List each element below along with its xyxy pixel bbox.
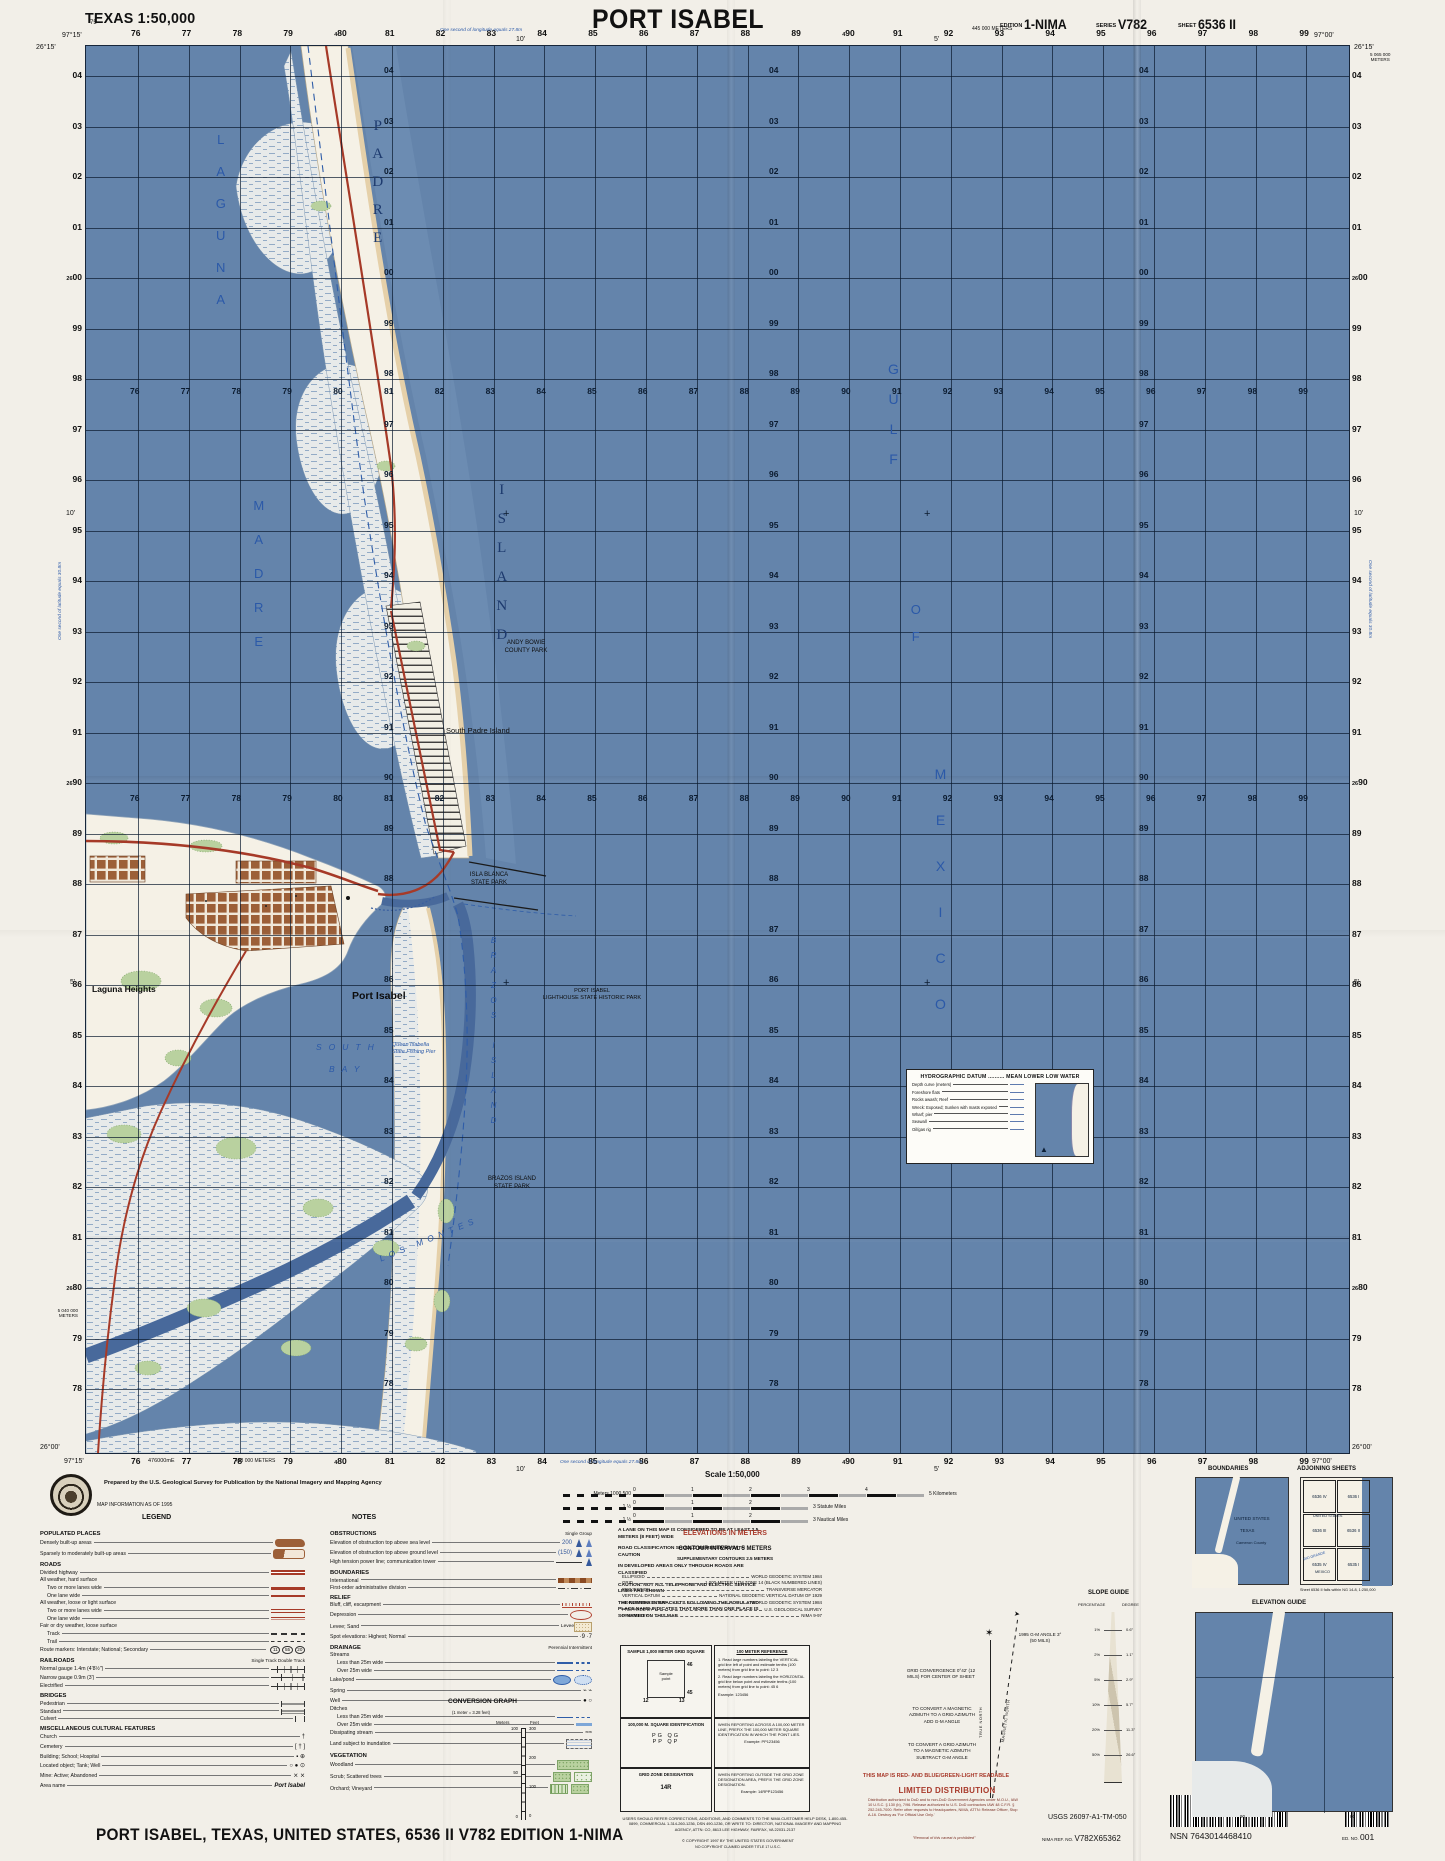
grid-label-interior: 99 xyxy=(769,318,778,328)
leader-line xyxy=(361,1625,559,1626)
grid-label-top: 95 xyxy=(1096,28,1105,38)
copyright-line-2: NO COPYRIGHT CLAIMED UNDER TITLE 17 U.S.… xyxy=(648,1845,828,1849)
grid-label-right: 82 xyxy=(1352,1181,1361,1191)
legend-item-label: Less than 25m wide xyxy=(337,1714,383,1720)
sheet-number-block: SHEET6536 II xyxy=(1178,16,1240,34)
magnetic-north-arrow-icon: ➤ xyxy=(1013,1610,1020,1619)
grid-label-interior: 83 xyxy=(1139,1126,1148,1136)
legend-symbol xyxy=(271,1595,305,1597)
legend-item-label: Dissipating stream xyxy=(330,1730,373,1736)
legend-item: Normal gauge 1.4m (4'8½") xyxy=(40,1666,305,1673)
grid-label-interior: 88 xyxy=(1139,873,1148,883)
leader-line xyxy=(440,1552,556,1553)
conversion-meters-label: Meters xyxy=(496,1720,509,1725)
grid-label-interior: 95 xyxy=(1095,793,1104,803)
grid-label-right: 88 xyxy=(1352,878,1361,888)
legend-item: Two or more lanes wide xyxy=(40,1608,305,1614)
map-label-south: SOUTH xyxy=(316,1042,381,1053)
legend-symbol: 200 xyxy=(562,1539,572,1547)
slope-guide-degree: 11.3° xyxy=(1126,1727,1135,1732)
grid-label-right: 89 xyxy=(1352,828,1361,838)
grid-label-interior: 00 xyxy=(1139,267,1148,277)
legend-item-label: Building; School; Hospital xyxy=(40,1754,99,1760)
grid-label-right: 2690 xyxy=(1352,777,1368,787)
grid-line-horizontal xyxy=(86,884,1349,885)
grid-label-interior: 85 xyxy=(587,386,596,396)
grid-label-interior: 95 xyxy=(1139,520,1148,530)
slope-guide-diagram xyxy=(1104,1612,1122,1783)
legend-item: Dissipating stream≈≈ xyxy=(330,1729,592,1737)
legend-group-label: All weather, loose or light surface xyxy=(40,1600,305,1606)
grid-label-interior: 92 xyxy=(943,386,952,396)
grid-line-horizontal xyxy=(86,1389,1349,1390)
legend-symbol xyxy=(553,1675,571,1685)
hydro-row-label: Seawall xyxy=(912,1119,927,1124)
legend-item-label: Trail xyxy=(47,1639,57,1645)
map-label-andy-bowie-county-park: ANDY BOWIE COUNTY PARK xyxy=(496,640,556,655)
leader-line xyxy=(432,1542,560,1543)
grid-label-left: 81 xyxy=(52,1232,82,1242)
conversion-feet-tick: 100 xyxy=(529,1784,536,1789)
grid-label-top: 88 xyxy=(741,28,750,38)
legend-symbol xyxy=(557,1717,573,1718)
grid-label-interior: 98 xyxy=(769,368,778,378)
contour-interval: CONTOUR INTERVAL 5 METERS xyxy=(640,1546,810,1552)
leader-line xyxy=(393,1743,564,1744)
legend-item-label: Area name xyxy=(40,1783,65,1789)
scale-bar-dashed xyxy=(563,1520,635,1523)
grid-label-bottom: 91 xyxy=(893,1456,902,1466)
grid-line-horizontal xyxy=(86,783,1349,784)
grid-line-horizontal xyxy=(86,581,1349,582)
footer-sheet-title: PORT ISABEL, TEXAS, UNITED STATES, 6536 … xyxy=(96,1826,623,1845)
grid-line-horizontal xyxy=(86,834,1349,835)
leader-line xyxy=(383,1604,560,1605)
grid-label-interior: 98 xyxy=(1248,793,1257,803)
slope-guide-row-line xyxy=(1104,1755,1122,1756)
scale-bar-tick: 1 xyxy=(691,1500,694,1506)
slope-guide-degree: 0.6° xyxy=(1126,1627,1133,1632)
leader-line xyxy=(374,1670,555,1671)
grid-line-vertical xyxy=(900,46,901,1453)
grid-label-interior: 85 xyxy=(587,793,596,803)
legend-item-label: Church xyxy=(40,1734,57,1740)
hundred-meter-step: 2. Read large numbers labeling the HORIZ… xyxy=(718,1674,806,1689)
legend-item: Scrub; Scattered trees xyxy=(330,1772,592,1782)
grid-label-interior: 82 xyxy=(435,793,444,803)
hydro-row-symbol xyxy=(1010,1091,1024,1094)
grid-label-interior: 01 xyxy=(769,217,778,227)
scale-bar-tick: 4 xyxy=(865,1487,868,1493)
latitude-note: One second of latitude equals 30.8m xyxy=(58,562,63,640)
legend-item-label: Mine: Active; Abandoned xyxy=(40,1773,97,1779)
grid-label-interior: 94 xyxy=(1044,793,1053,803)
grid-line-horizontal xyxy=(86,329,1349,330)
grid-label-interior: 88 xyxy=(769,873,778,883)
legend-symbol: [ † ] xyxy=(295,1743,305,1751)
grid-label-interior: 00 xyxy=(769,267,778,277)
hundred-meter-step: 1. Read large numbers labeling the VERTI… xyxy=(718,1657,806,1672)
grid-label-interior: 89 xyxy=(790,793,799,803)
slope-guide-col2: DEGREE xyxy=(1122,1602,1139,1607)
grid-label-right: 93 xyxy=(1352,626,1361,636)
grid-label-bottom: 83 xyxy=(487,1456,496,1466)
grid-label-top: 99 xyxy=(1299,28,1308,38)
adjoining-country-top: UNITED STATES xyxy=(1313,1514,1342,1518)
leader-line xyxy=(102,1765,287,1766)
grid-label-left: 93 xyxy=(52,626,82,636)
boundaries-land-shape xyxy=(1192,1554,1238,1588)
minute-tick-10: 10' xyxy=(516,1466,525,1473)
datum-key: HORIZONTAL DATUM xyxy=(622,1600,666,1605)
legend-item-label: Land subject to inundation xyxy=(330,1741,391,1747)
grid-line-horizontal xyxy=(86,1238,1349,1239)
legend-symbol xyxy=(557,1760,589,1770)
grid-label-right: 01 xyxy=(1352,222,1361,232)
legend-section-header: DRAINAGEPerennial Intermittent xyxy=(330,1645,592,1651)
grid-label-interior: 81 xyxy=(384,1227,393,1237)
minute-tick-5: 5' xyxy=(934,1466,939,1473)
legend-symbol xyxy=(273,1549,305,1559)
grid-line-vertical xyxy=(1306,46,1307,1453)
leader-line xyxy=(99,1775,291,1776)
legend-item: High tension power line; communication t… xyxy=(330,1558,592,1566)
reporting-outside-box: WHEN REPORTING OUTSIDE THE GRID ZONE DES… xyxy=(714,1768,810,1812)
grid-line-vertical xyxy=(1205,46,1206,1453)
grid-label-interior: 98 xyxy=(1139,368,1148,378)
grid-line-horizontal xyxy=(86,127,1349,128)
grid-label-interior: 98 xyxy=(1248,386,1257,396)
grid-label-bottom: 92 xyxy=(944,1456,953,1466)
leader-line xyxy=(375,1732,584,1733)
minute-tick-5: 5' xyxy=(1354,979,1359,986)
grid-label-interior: 91 xyxy=(769,722,778,732)
legend-item-label: Two or more lanes wide xyxy=(47,1608,102,1614)
grid-label-interior: 90 xyxy=(841,793,850,803)
legend-item-label: First-order administrative division xyxy=(330,1585,406,1591)
map-label-south-padre-island: South Padre Island xyxy=(446,726,510,735)
leader-line xyxy=(662,1596,717,1597)
grid-label-interior: 01 xyxy=(1139,217,1148,227)
legend-item-label: International xyxy=(330,1578,359,1584)
grid-label-interior: 93 xyxy=(1139,621,1148,631)
legend-item: Mine: Active; Abandoned⨯ ⨯ xyxy=(40,1772,305,1780)
grid-line-horizontal xyxy=(86,480,1349,481)
grid-label-left: 92 xyxy=(52,676,82,686)
leader-line xyxy=(347,1690,581,1691)
hydro-row: Rocks awash; Reef xyxy=(912,1097,1024,1102)
reporting-outside-text: WHEN REPORTING OUTSIDE THE GRID ZONE DES… xyxy=(718,1772,806,1787)
map-label-mexico: MEXICO xyxy=(931,766,949,1042)
grid-zone-box: GRID ZONE DESIGNATION14R xyxy=(620,1768,712,1812)
grid-label-left: 03 xyxy=(52,121,82,131)
datum-row: GRID1,000-METER UTM ZONE 14 (BLACK NUMBE… xyxy=(622,1580,822,1585)
datum-key: PREPARED BY xyxy=(622,1607,653,1612)
sheet-label: SHEET xyxy=(1178,23,1196,29)
legend-section-header: POPULATED PLACES xyxy=(40,1531,305,1537)
datum-key: PROJECTION xyxy=(622,1587,650,1592)
leader-line xyxy=(385,1662,555,1663)
hydro-row-label: Foreshore flats xyxy=(912,1090,940,1095)
legend-section-title: DRAINAGE xyxy=(330,1645,361,1651)
legend-item: Narrow gauge 0.9m (3') xyxy=(40,1674,305,1681)
datum-row: VERTICAL DATUMNATIONAL GEODETIC VERTICAL… xyxy=(622,1593,822,1598)
leader-line xyxy=(668,1603,749,1604)
grid-label-interior: 92 xyxy=(769,671,778,681)
legend-symbol xyxy=(553,1772,571,1782)
grid-label-interior: 93 xyxy=(769,621,778,631)
legend-item: Cemetery[ † ] xyxy=(40,1743,305,1751)
datum-value: NATIONAL GEODETIC VERTICAL DATUM OF 1929 xyxy=(719,1593,822,1598)
grid-line-vertical xyxy=(290,46,291,1453)
leader-line xyxy=(62,1633,269,1634)
leader-line xyxy=(408,1636,578,1637)
grid-label-interior: 89 xyxy=(790,386,799,396)
legend-symbol xyxy=(295,1716,305,1722)
grid-label-interior: 97 xyxy=(1197,386,1206,396)
hydro-row: Oil/gas rig xyxy=(912,1127,1024,1132)
grid-label-left: 87 xyxy=(52,929,82,939)
scale-bar-segments xyxy=(635,1520,809,1523)
grid-label-interior: 94 xyxy=(1044,386,1053,396)
grid-label-right: 2600 xyxy=(1352,272,1368,282)
conversion-meters-tick: 100 xyxy=(504,1726,518,1731)
legend-symbol xyxy=(574,1675,592,1685)
legend-item-label: Spot elevations: Highest; Normal xyxy=(330,1634,406,1640)
map-label-port-isabel: Port Isabel xyxy=(352,990,406,1003)
adjoining-cell: 6536 III xyxy=(1303,1514,1336,1547)
grid-label-interior: 82 xyxy=(1139,1176,1148,1186)
legend-item-label: Standard xyxy=(40,1709,61,1715)
scale-bar-dashed xyxy=(563,1507,635,1510)
grid-label-interior: 79 xyxy=(282,793,291,803)
hydro-row-symbol xyxy=(1010,1106,1024,1109)
hydro-row-label: Wreck: Exposed; Sunken with masts expose… xyxy=(912,1105,997,1110)
slope-guide-percent: 2% xyxy=(1082,1652,1100,1657)
grid-label-top: 85 xyxy=(588,28,597,38)
grid-label-left: 82 xyxy=(52,1181,82,1191)
minute-tick-5: 5' xyxy=(70,979,75,986)
datum-value: 1,000-METER UTM ZONE 14 (BLACK NUMBERED … xyxy=(705,1580,822,1585)
grid-label-interior: 92 xyxy=(1139,671,1148,681)
legend-item: Spring⌁ ⌁ xyxy=(330,1687,592,1695)
grid-label-top: 94 xyxy=(1045,28,1054,38)
route-shield-icon: 11 xyxy=(270,1646,280,1654)
slope-guide-row-line xyxy=(1104,1655,1122,1656)
grid-label-interior: 78 xyxy=(1139,1378,1148,1388)
legend-item: Electrified xyxy=(40,1683,305,1690)
grid-label-interior: 82 xyxy=(769,1176,778,1186)
legend-item-label: Bluff, cliff, escarpment xyxy=(330,1602,381,1608)
grid-label-interior: 86 xyxy=(1139,974,1148,984)
leader-line xyxy=(655,1610,763,1611)
slope-guide-percent: 5% xyxy=(1082,1677,1100,1682)
legend-symbol xyxy=(586,1539,592,1547)
grid-label-top: 81 xyxy=(385,28,394,38)
grid-label-right: 95 xyxy=(1352,525,1361,535)
grid-label-interior: 77 xyxy=(181,793,190,803)
legend-item-label: Normal gauge 1.4m (4'8½") xyxy=(40,1666,103,1672)
leader-line xyxy=(934,1113,1008,1114)
grid-label-right: 99 xyxy=(1352,323,1361,333)
boundaries-label-county: Cameron County xyxy=(1236,1540,1266,1545)
leader-line xyxy=(65,1746,293,1747)
legend-item: Divided highway xyxy=(40,1570,305,1576)
legend-symbol xyxy=(558,1578,592,1583)
grid-line-vertical xyxy=(189,46,190,1453)
grid-label-interior: 86 xyxy=(384,974,393,984)
grid-label-top: 79 xyxy=(283,28,292,38)
grid-label-top: 480 xyxy=(334,28,347,38)
longitude-note: One second of longitude equals 27.8m xyxy=(440,28,522,33)
legend-section-title: BOUNDARIES xyxy=(330,1570,369,1576)
legend-item-label: Route markers: Interstate; National; Sec… xyxy=(40,1647,148,1653)
grid-label-interior: 81 xyxy=(769,1227,778,1237)
corner-coordinate: 75 xyxy=(90,20,97,26)
leader-line xyxy=(104,1610,269,1611)
leader-line xyxy=(67,1785,272,1786)
latitude-note: One second of latitude equals 30.8m xyxy=(1367,560,1372,638)
grid-label-interior: 84 xyxy=(769,1075,778,1085)
grid-label-top: 76 xyxy=(131,28,140,38)
scale-bar-tick: 0 xyxy=(633,1513,636,1519)
legend-group-label: Streams xyxy=(330,1652,592,1658)
users-corrections-note: USERS SHOULD REFER CORRECTIONS, ADDITION… xyxy=(620,1816,850,1832)
grid-sample-box: SAMPLE 1,000 METER GRID SQUARESample poi… xyxy=(620,1645,712,1718)
corner-coordinate: 26°00' xyxy=(40,1444,60,1451)
grid-label-left: 79 xyxy=(52,1333,82,1343)
grid-label-interior: 89 xyxy=(769,823,778,833)
datum-row: PROJECTIONTRANSVERSE MERCATOR xyxy=(622,1587,822,1592)
legend-item: Less than 25m wide xyxy=(330,1660,592,1666)
legend-symbol xyxy=(562,1603,592,1608)
legend-symbol xyxy=(574,1772,592,1782)
grid-label-bottom: 98 xyxy=(1249,1456,1258,1466)
north-arrow-icon: ▲ xyxy=(1040,1145,1048,1154)
grid-label-interior: 87 xyxy=(1139,924,1148,934)
legend-symbol xyxy=(271,1587,305,1590)
legend-item: Located object; Tank; Well○ ● ⊙ xyxy=(40,1762,305,1770)
grid-label-interior: 99 xyxy=(1298,386,1307,396)
leader-line xyxy=(59,1641,269,1642)
leader-line xyxy=(358,1614,568,1615)
legend-section-header: OBSTRUCTIONSSingle Group xyxy=(330,1531,592,1537)
grid-label-left: 95 xyxy=(52,525,82,535)
grid-label-interior: 80 xyxy=(384,1277,393,1287)
leader-line xyxy=(933,1128,1008,1129)
datum-key: VERTICAL DATUM xyxy=(622,1593,660,1598)
grid-label-left: 98 xyxy=(52,373,82,383)
legend-symbol: Port Isabel xyxy=(274,1782,305,1790)
grid-sample-bottom: 45 xyxy=(687,1690,693,1696)
adjoining-cell: 6536 I xyxy=(1337,1480,1370,1513)
datum-value: WORLD GEODETIC SYSTEM 1984 xyxy=(751,1574,822,1579)
minute-tick-10: 10' xyxy=(66,510,75,517)
grid-label-interior: 80 xyxy=(769,1277,778,1287)
grid-label-interior: 84 xyxy=(536,793,545,803)
corner-coordinate: 26°15' xyxy=(1354,44,1374,51)
legend-item: Route markers: Interstate; National; Sec… xyxy=(40,1646,305,1654)
leader-line xyxy=(635,1583,703,1584)
grid-label-left: 88 xyxy=(52,878,82,888)
grid-label-interior: 92 xyxy=(384,671,393,681)
datum-value: U.S. GEOLOGICAL SURVEY xyxy=(764,1607,822,1612)
grid-label-left: 94 xyxy=(52,575,82,585)
legend-item: Elevation of obstruction top above groun… xyxy=(330,1549,592,1557)
grid-label-interior: 76 xyxy=(130,793,139,803)
slope-guide-percent: 50% xyxy=(1082,1752,1100,1757)
grid-label-interior: 85 xyxy=(1139,1025,1148,1035)
adjoining-cell: 6535 I xyxy=(1337,1548,1370,1581)
legend-symbol xyxy=(271,1666,305,1673)
gm-angle-text: 1995 G-M ANGLE 3° (50 MILS) xyxy=(1018,1632,1062,1645)
grid-line-vertical xyxy=(1103,46,1104,1453)
corner-coordinate: 97°00' xyxy=(1312,1458,1332,1465)
datum-value: NIMA 9-97 xyxy=(801,1613,822,1618)
grid-label-top: 89 xyxy=(791,28,800,38)
grid-label-bottom: 96 xyxy=(1147,1456,1156,1466)
grid-line-horizontal xyxy=(86,430,1349,431)
legend-section-header: MISCELLANEOUS CULTURAL FEATURES xyxy=(40,1726,305,1732)
scale-bar-tick: 1 xyxy=(691,1513,694,1519)
map-label-bay: BAY xyxy=(329,1064,366,1075)
grid-label-interior: 04 xyxy=(769,65,778,75)
conversion-feet-tick: 200 xyxy=(529,1755,536,1760)
leader-line xyxy=(942,1091,1008,1092)
grid-label-right: 04 xyxy=(1352,70,1361,80)
grid-label-interior: 99 xyxy=(384,318,393,328)
grid-line-horizontal xyxy=(86,1036,1349,1037)
grid-label-bottom: 94 xyxy=(1045,1456,1054,1466)
grid-label-left: 84 xyxy=(52,1080,82,1090)
slope-guide-percent: 1% xyxy=(1082,1627,1100,1632)
legend-symbol: ·9 ·7 xyxy=(580,1633,592,1641)
grid-line-horizontal xyxy=(86,76,1349,77)
elevations-heading: ELEVATIONS IN METERS xyxy=(640,1530,810,1537)
legend-item-label: Lake/pond xyxy=(330,1677,354,1683)
hydro-row-symbol xyxy=(1010,1083,1024,1086)
light-readable-note: THIS MAP IS RED- AND BLUE/GREEN-LIGHT RE… xyxy=(846,1773,1026,1779)
grid-label-interior: 83 xyxy=(486,386,495,396)
legend-symbol xyxy=(586,1549,592,1557)
legend-item: Land subject to inundation xyxy=(330,1739,592,1749)
grid-line-horizontal xyxy=(86,228,1349,229)
grid-sample-top: 46 xyxy=(687,1662,693,1668)
grid-label-interior: 78 xyxy=(384,1378,393,1388)
leader-line xyxy=(361,1579,556,1580)
grid-label-interior: 86 xyxy=(638,793,647,803)
grid-label-top: 78 xyxy=(233,28,242,38)
leader-line xyxy=(59,1736,300,1737)
adjoining-sheets-panel: 6536 IV6536 I6536 III6536 II6535 IV6535 … xyxy=(1300,1477,1393,1585)
legend-section-header: VEGETATION xyxy=(330,1753,592,1759)
grid-line-horizontal xyxy=(86,531,1349,532)
datum-list: ELLIPSOIDWORLD GEODETIC SYSTEM 1984GRID1… xyxy=(622,1572,822,1618)
hydro-row: Wharf; pier xyxy=(912,1112,1024,1117)
grid-label-right: 85 xyxy=(1352,1030,1361,1040)
leader-line xyxy=(80,1572,269,1573)
legend-section-header: RELIEF xyxy=(330,1595,592,1601)
grid-label-interior: 84 xyxy=(1139,1075,1148,1085)
elevation-guide-tick: 90 xyxy=(1240,1814,1245,1819)
conversion-meters-tick: 50 xyxy=(504,1770,518,1775)
legend-symbol xyxy=(557,1670,573,1671)
scale-bar: Meters 1000 500012345 Kilometers xyxy=(543,1488,963,1500)
sheet-title: PORT ISABEL xyxy=(592,4,764,35)
legend-section-header: ROADS xyxy=(40,1562,305,1568)
grid-label-top: 87 xyxy=(690,28,699,38)
reporting-across-box: WHEN REPORTING ACROSS A 100,000 METER LI… xyxy=(714,1718,810,1768)
